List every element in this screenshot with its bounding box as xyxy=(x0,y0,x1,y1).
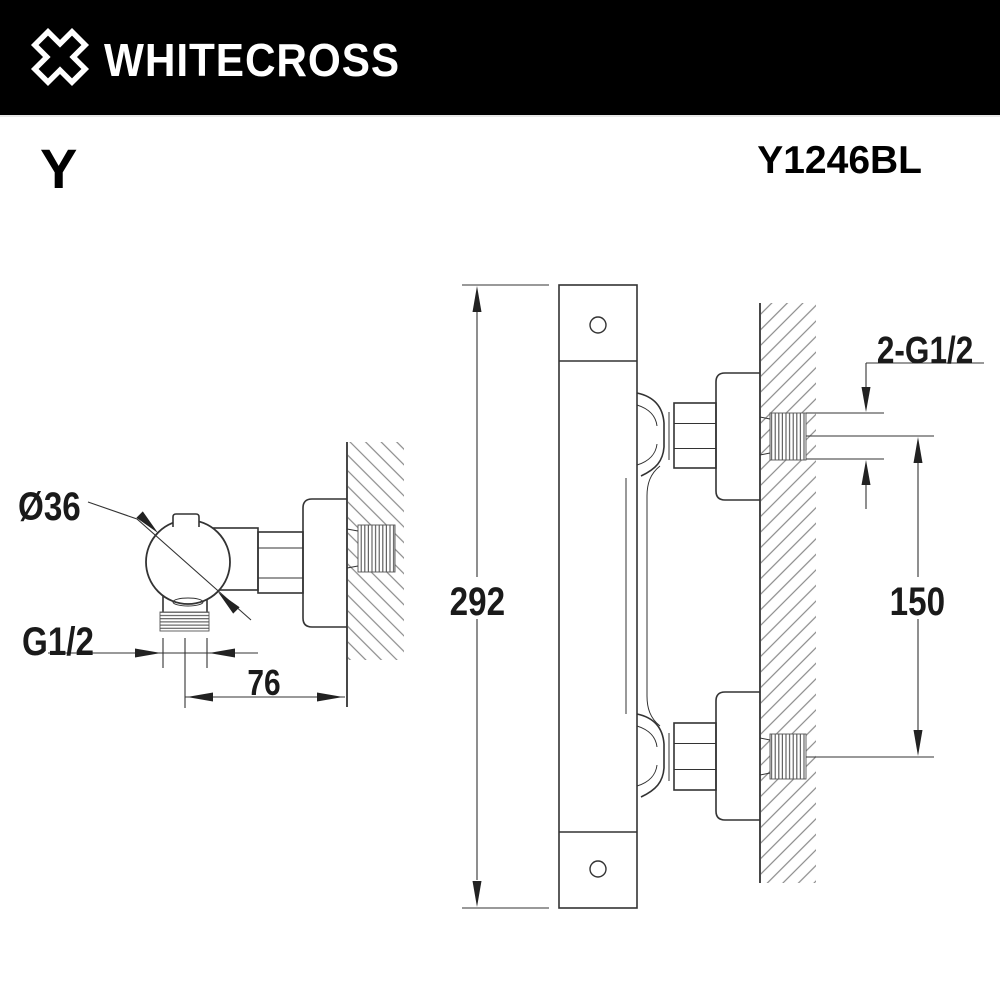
wall-flange-left xyxy=(303,499,347,627)
inlet-thread-top xyxy=(770,413,806,460)
drawing-canvas xyxy=(0,0,1000,1000)
outlet-thread-label: G1/2 xyxy=(22,620,110,665)
wall-flange-top xyxy=(716,373,760,500)
inlet-spacing-label: 150 xyxy=(882,580,952,625)
outlet-thread xyxy=(160,612,209,631)
knob-cap xyxy=(173,514,199,527)
inlet-thread-bottom xyxy=(770,734,806,779)
height-label: 292 xyxy=(442,580,512,625)
shower-bar-body xyxy=(559,285,637,908)
side-view-drawing xyxy=(48,442,404,708)
technical-drawing-page: WHITECROSS Y Y1246BL xyxy=(0,0,1000,1000)
wall-flange-bottom xyxy=(716,692,760,820)
inlet-threads-label: 2-G1/2 xyxy=(860,330,990,373)
depth-label: 76 xyxy=(238,662,290,704)
wall-hatch-right xyxy=(761,303,816,883)
wall-thread-left xyxy=(358,525,395,572)
valve-knob-circle xyxy=(146,520,230,604)
knob-diameter-label: Ø36 xyxy=(18,485,90,530)
